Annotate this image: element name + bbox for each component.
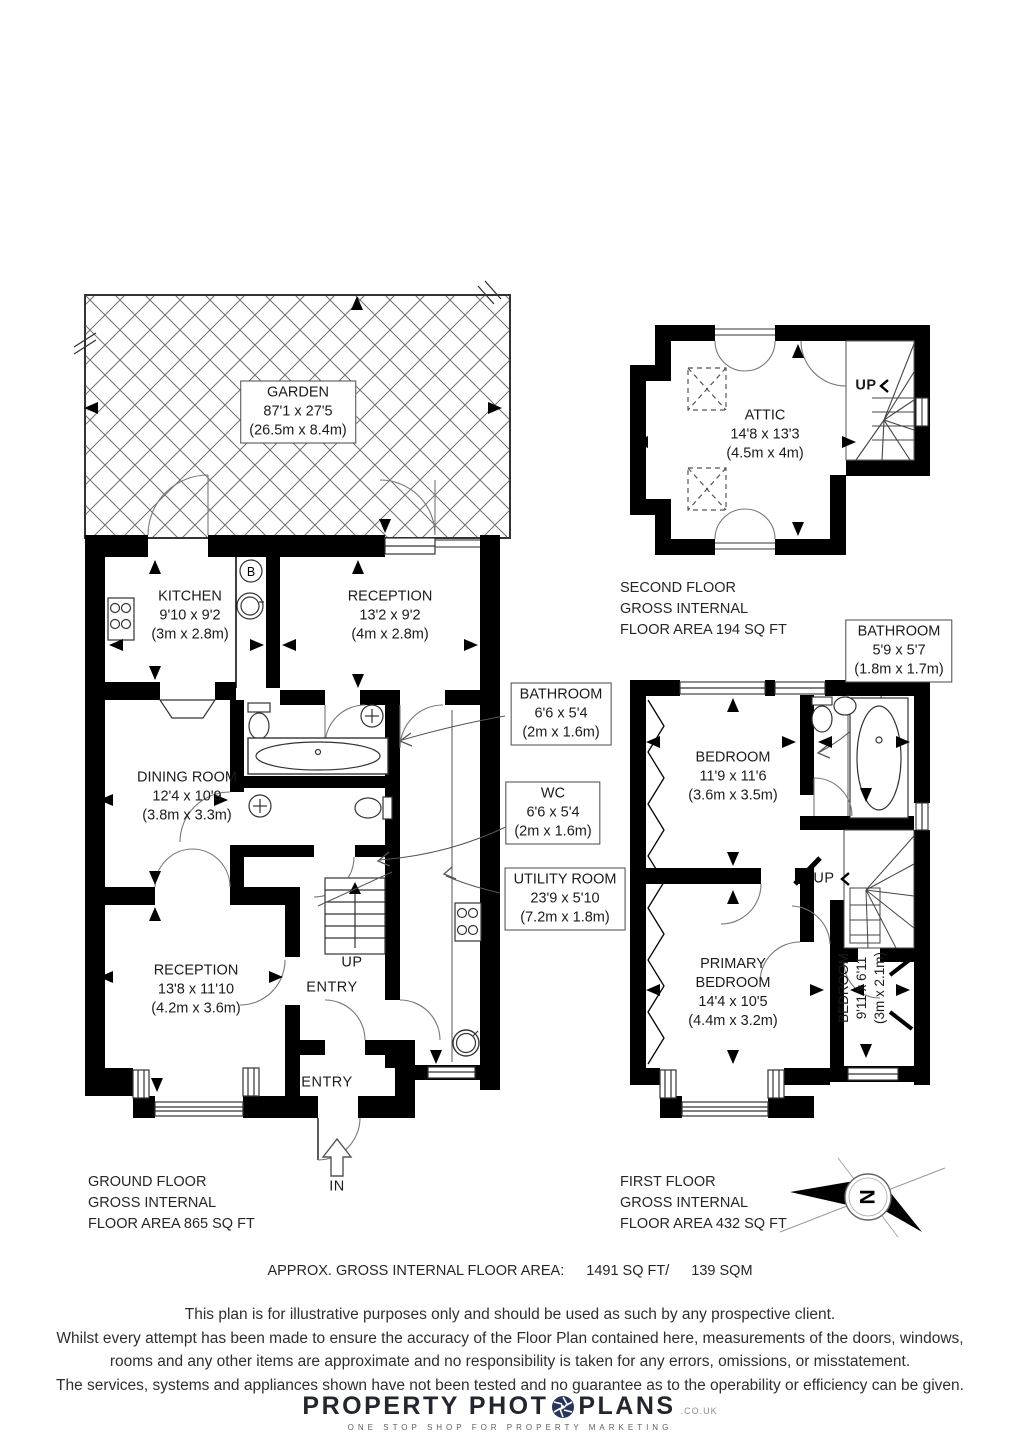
attic-stairs	[846, 341, 914, 460]
first-floor-details	[648, 682, 928, 1116]
attic-label: ATTIC 14'8 x 13'3 (4.5m x 4m)	[726, 407, 803, 464]
logo-text-left: PROPERTY PHOT	[302, 1392, 548, 1421]
boiler-label: B	[247, 565, 255, 579]
attic-skylights	[688, 368, 726, 510]
second-floor-note: SECOND FLOOR GROSS INTERNAL FLOOR AREA 1…	[620, 578, 787, 641]
camera-lens-icon	[551, 1395, 575, 1419]
primary-bedroom-label: PRIMARY BEDROOM 14'4 x 10'5 (4.4m x 3.2m…	[667, 955, 799, 1031]
reception-rear-label: RECEPTION 13'2 x 9'2 (4m x 2.8m)	[348, 588, 433, 645]
dining-room-label: DINING ROOM 12'4 x 10'9 (3.8m x 3.3m)	[137, 769, 237, 826]
floorplan-page: B N GARDEN 87'1 x 27'5 (26.5m x 8.4m) AT…	[0, 0, 1020, 1443]
logo-suffix: .CO.UK	[681, 1406, 718, 1416]
compass-north-label: N	[855, 1189, 878, 1204]
logo-text-right: PLANS	[578, 1392, 675, 1421]
first-floor-stairs	[844, 830, 914, 948]
bedroom-rear-label: BEDROOM 11'9 x 11'6 (3.6m x 3.5m)	[688, 749, 777, 806]
bathroom-callout: BATHROOM 6'6 x 5'4 (2m x 1.6m)	[511, 683, 612, 746]
ground-floor-walls	[85, 535, 500, 1118]
garden-name: GARDEN	[249, 384, 347, 403]
in-label: IN	[329, 1178, 345, 1197]
first-floor-up-label: UP	[813, 870, 834, 889]
summary-sqm: 139 SQM	[691, 1263, 752, 1279]
attic-up-label: UP	[855, 377, 876, 396]
window-rear-reception	[385, 538, 435, 554]
reception-front-label: RECEPTION 13'8 x 11'10 (4.2m x 3.6m)	[151, 962, 240, 1019]
ground-stairs	[318, 872, 392, 954]
garden-metric: (26.5m x 8.4m)	[249, 422, 347, 441]
garden-imperial: 87'1 x 27'5	[249, 403, 347, 422]
kitchen-label: KITCHEN 9'10 x 9'2 (3m x 2.8m)	[151, 588, 228, 645]
bedroom-front-label: BEDROOM 9'11 x 6'11 (3m x 2.1m)	[835, 952, 889, 1024]
ground-floor-note: GROUND FLOOR GROSS INTERNAL FLOOR AREA 8…	[88, 1172, 255, 1235]
entry-rear-label: ENTRY	[306, 979, 357, 998]
summary-sqft: 1491 SQ FT/	[586, 1263, 669, 1279]
disclaimer-text: This plan is for illustrative purposes o…	[0, 1303, 1020, 1397]
utility-room-callout: UTILITY ROOM 23'9 x 5'10 (7.2m x 1.8m)	[505, 868, 626, 931]
compass-rose: N	[780, 1158, 945, 1237]
logo-tagline: ONE STOP SHOP FOR PROPERTY MARKETING	[0, 1423, 1020, 1432]
summary-label: APPROX. GROSS INTERNAL FLOOR AREA:	[267, 1263, 564, 1279]
first-floor-bathroom-callout: BATHROOM 5'9 x 5'7 (1.8m x 1.7m)	[845, 620, 952, 683]
garden-label: GARDEN 87'1 x 27'5 (26.5m x 8.4m)	[240, 381, 356, 444]
first-floor-note: FIRST FLOOR GROSS INTERNAL FLOOR AREA 43…	[620, 1172, 787, 1235]
entry-front-label: ENTRY	[301, 1074, 352, 1093]
ground-up-label: UP	[341, 954, 362, 973]
company-logo: PROPERTY PHOT PLANS .CO.UK ONE STOP SHOP…	[0, 1392, 1020, 1432]
wc-callout: WC 6'6 x 5'4 (2m x 1.6m)	[505, 782, 600, 845]
total-area-summary: APPROX. GROSS INTERNAL FLOOR AREA:1491 S…	[0, 1263, 1020, 1279]
attic-details	[688, 329, 928, 549]
